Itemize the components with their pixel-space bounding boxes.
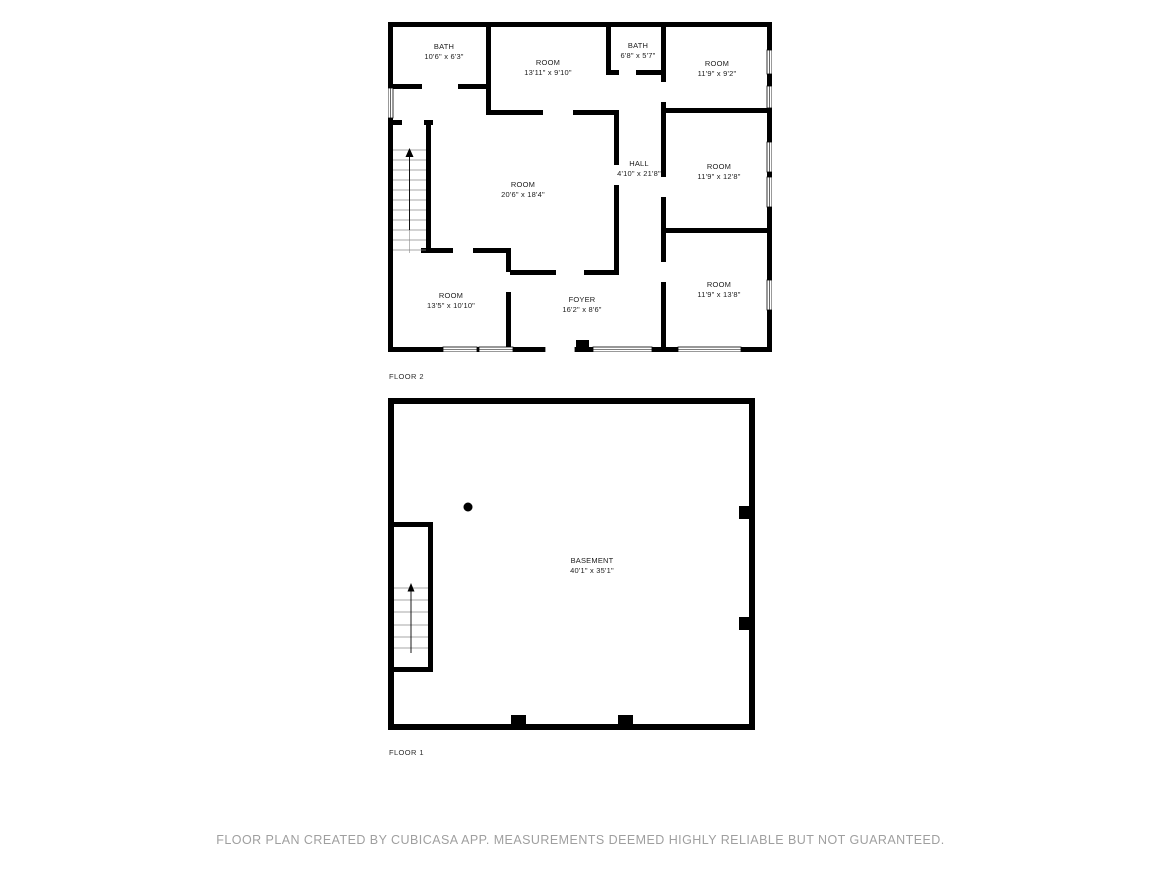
room-label-room-bottom-right: ROOM 11'9" x 13'8" — [697, 280, 740, 299]
room-dims: 16'2" x 8'6" — [562, 305, 601, 315]
window-icon — [388, 88, 393, 118]
room-name: BASEMENT — [570, 556, 614, 566]
wall-post — [739, 617, 749, 630]
floor-plan-page: BATH 10'6" x 6'3" ROOM 13'11" x 9'10" BA… — [0, 0, 1161, 871]
room-name: ROOM — [697, 280, 740, 290]
room-dims: 4'10" x 21'8" — [617, 169, 661, 179]
room-dims: 40'1" x 35'1" — [570, 566, 614, 576]
room-label-basement: BASEMENT 40'1" x 35'1" — [570, 556, 614, 575]
wall-post — [739, 506, 749, 519]
window-icon — [767, 177, 772, 207]
window-icon — [443, 347, 477, 352]
room-label-bath-center: BATH 6'8" x 5'7" — [621, 41, 656, 60]
staircase-icon — [394, 583, 428, 653]
room-dims: 6'8" x 5'7" — [621, 51, 656, 61]
room-label-room-bottom-left: ROOM 13'5" x 10'10" — [427, 291, 475, 310]
up-arrow-icon — [408, 583, 415, 653]
window-icon — [767, 50, 772, 74]
window-icon — [767, 142, 772, 172]
room-dims: 13'5" x 10'10" — [427, 301, 475, 311]
room-label-hall: HALL 4'10" x 21'8" — [617, 159, 661, 178]
disclaimer-text: FLOOR PLAN CREATED BY CUBICASA APP. MEAS… — [0, 833, 1161, 847]
room-name: BATH — [424, 42, 463, 52]
room-label-foyer: FOYER 16'2" x 8'6" — [562, 295, 601, 314]
room-label-room-mid-right: ROOM 11'9" x 12'8" — [697, 162, 740, 181]
room-dims: 13'11" x 9'10" — [524, 68, 572, 78]
support-column-icons — [464, 503, 750, 728]
window-icon — [678, 347, 741, 352]
floor-1-caption: FLOOR 1 — [389, 748, 424, 757]
room-dims: 10'6" x 6'3" — [424, 52, 463, 62]
column-dot-icon — [464, 503, 473, 512]
stair-enclosure-walls — [392, 522, 433, 672]
room-dims: 11'9" x 13'8" — [697, 290, 740, 300]
wall-post — [511, 715, 526, 727]
room-name: ROOM — [698, 59, 737, 69]
floor-2-caption: FLOOR 2 — [389, 372, 424, 381]
room-name: BATH — [621, 41, 656, 51]
staircase-icon — [393, 148, 426, 253]
room-label-bath-upper-left: BATH 10'6" x 6'3" — [424, 42, 463, 61]
window-icon — [767, 280, 772, 310]
room-dims: 20'6" x 18'4" — [501, 190, 545, 200]
room-label-room-center: ROOM 20'6" x 18'4" — [501, 180, 545, 199]
door-opening — [545, 347, 575, 352]
room-name: HALL — [617, 159, 661, 169]
window-icon — [767, 86, 772, 108]
wall-pier — [576, 340, 589, 352]
floor-2-plan: BATH 10'6" x 6'3" ROOM 13'11" x 9'10" BA… — [388, 22, 772, 352]
window-icon — [479, 347, 513, 352]
room-name: ROOM — [501, 180, 545, 190]
wall-post — [618, 715, 633, 727]
room-name: ROOM — [427, 291, 475, 301]
room-name: ROOM — [697, 162, 740, 172]
floor-1-plan: BASEMENT 40'1" x 35'1" — [388, 398, 755, 730]
room-name: ROOM — [524, 58, 572, 68]
room-name: FOYER — [562, 295, 601, 305]
room-dims: 11'9" x 12'8" — [697, 172, 740, 182]
room-label-room-top: ROOM 13'11" x 9'10" — [524, 58, 572, 77]
room-dims: 11'9" x 9'2" — [698, 69, 737, 79]
room-label-room-top-right: ROOM 11'9" x 9'2" — [698, 59, 737, 78]
window-icon — [593, 347, 652, 352]
